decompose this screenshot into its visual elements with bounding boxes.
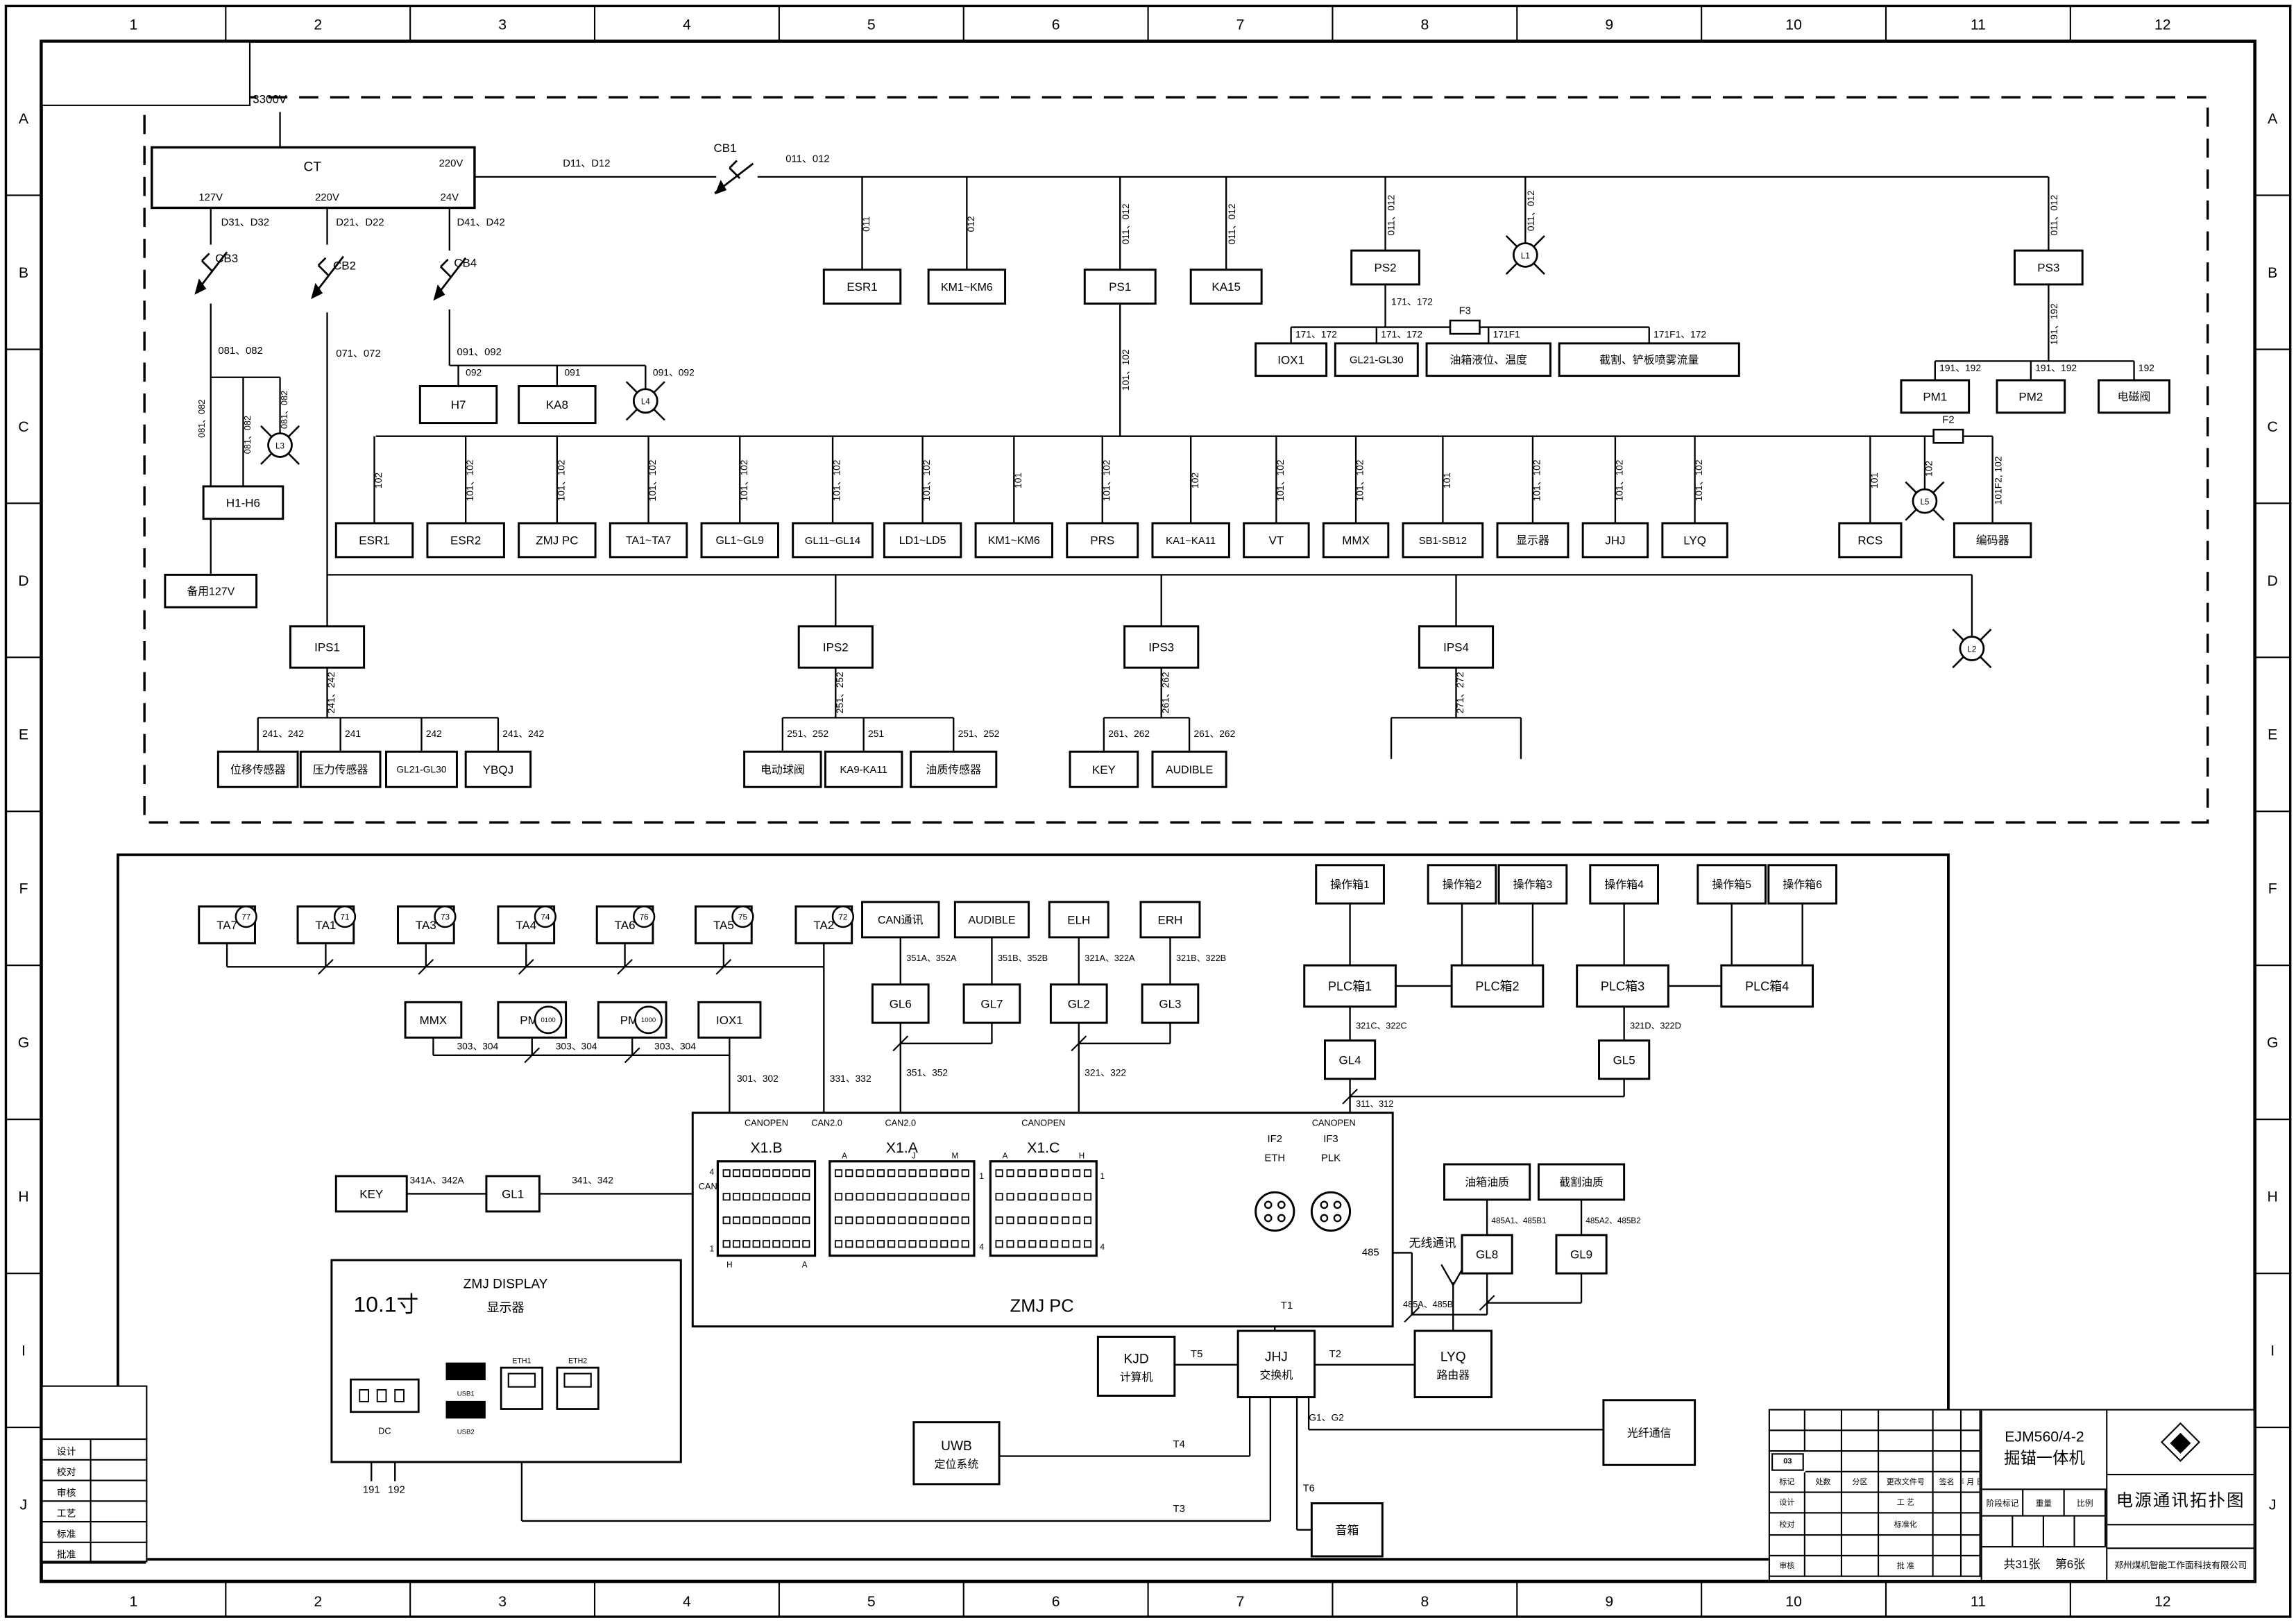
box-label: 操作箱6 bbox=[1783, 878, 1822, 891]
row-label: E bbox=[19, 726, 28, 743]
signature-empty-cell bbox=[43, 1387, 146, 1440]
connector-pin bbox=[899, 1217, 905, 1223]
signature-row: 标准 bbox=[43, 1522, 146, 1543]
box-label: H7 bbox=[451, 398, 466, 411]
column-label: 5 bbox=[867, 1593, 876, 1610]
column-label: 11 bbox=[1971, 16, 1986, 33]
connector-pin bbox=[793, 1241, 799, 1247]
wire-label: ETH2 bbox=[568, 1357, 587, 1366]
connector-pin bbox=[846, 1241, 852, 1247]
badge-value: 73 bbox=[441, 912, 450, 921]
connector-pin bbox=[962, 1193, 969, 1200]
column-label: 10 bbox=[1785, 1593, 1802, 1610]
wire-label: ETH bbox=[1264, 1153, 1285, 1164]
box-label: 光纤通信 bbox=[1627, 1427, 1672, 1439]
box-label: 电磁阀 bbox=[2118, 391, 2151, 403]
connector-pin bbox=[1040, 1193, 1046, 1200]
row-label: D bbox=[18, 572, 28, 589]
wire-label: 261、262 bbox=[1160, 672, 1171, 713]
connector-pin bbox=[867, 1170, 874, 1176]
box-sublabel: 计算机 bbox=[1120, 1370, 1153, 1384]
sheet-count: 共31张 bbox=[2004, 1556, 2041, 1572]
title-block-cell bbox=[1962, 1514, 1981, 1535]
wire-label: 012 bbox=[966, 216, 976, 232]
box-label: GL6 bbox=[890, 998, 912, 1011]
wire-label: 191 bbox=[363, 1485, 380, 1496]
wire-label: 251、252 bbox=[835, 672, 845, 713]
wire-label: 303、304 bbox=[654, 1041, 696, 1051]
wire-label: 321C、322C bbox=[1356, 1021, 1407, 1031]
drawing-title: 电源通讯拓扑图 bbox=[2108, 1474, 2254, 1524]
row-label: H bbox=[18, 1189, 28, 1205]
title-block-cell bbox=[1805, 1535, 1842, 1556]
row-label: I bbox=[22, 1343, 26, 1359]
box-label: IOX1 bbox=[716, 1014, 743, 1027]
title-block-cell bbox=[1879, 1431, 1934, 1452]
box-label: TA4 bbox=[516, 919, 536, 932]
box-label: PS1 bbox=[1109, 280, 1131, 294]
usb-connector bbox=[447, 1402, 485, 1418]
row-label: J bbox=[2269, 1497, 2277, 1513]
connector-pin bbox=[835, 1217, 842, 1223]
wire-label: 220V bbox=[439, 158, 464, 169]
wire-label: 091 bbox=[564, 368, 580, 378]
title-block-cell bbox=[1842, 1411, 1879, 1431]
title-block-cell bbox=[1842, 1431, 1879, 1452]
column-label: 1 bbox=[129, 1593, 137, 1610]
connector-pin bbox=[1007, 1193, 1013, 1200]
connector-pin bbox=[888, 1217, 894, 1223]
connector-pin bbox=[941, 1241, 947, 1247]
connector-pin bbox=[793, 1193, 799, 1200]
column-label: 8 bbox=[1420, 1593, 1429, 1610]
empty-cell bbox=[2108, 1524, 2254, 1547]
box-label: IPS4 bbox=[1443, 641, 1469, 654]
connector-pin bbox=[962, 1170, 969, 1176]
wire-label: 341A、342A bbox=[409, 1175, 464, 1186]
connector-pin bbox=[941, 1193, 947, 1200]
connector-pin bbox=[803, 1193, 809, 1200]
wire-label: 261、262 bbox=[1193, 729, 1235, 739]
wire-label: 171、172 bbox=[1381, 329, 1422, 339]
connector-pin bbox=[763, 1170, 769, 1176]
wire-label: 191、192 bbox=[2035, 363, 2077, 373]
connector-pin bbox=[803, 1217, 809, 1223]
connector-pin bbox=[951, 1217, 958, 1223]
row-label: A bbox=[19, 110, 29, 127]
connector-pin bbox=[743, 1193, 749, 1200]
connector-pin bbox=[920, 1170, 926, 1176]
box-label: PM1 bbox=[1923, 390, 1947, 403]
wire-label: 171F1 bbox=[1493, 329, 1520, 339]
signature-row: 审核 bbox=[43, 1481, 146, 1502]
lamp-label: L4 bbox=[641, 398, 650, 407]
wire-label: ZMJ PC bbox=[1010, 1296, 1074, 1316]
title-block-cell bbox=[1770, 1411, 1805, 1431]
box-label: RCS bbox=[1857, 534, 1882, 547]
wire-label: H bbox=[1079, 1151, 1085, 1160]
box-label: 电动球阀 bbox=[760, 763, 805, 776]
box-label: TA1 bbox=[315, 919, 336, 932]
wire-label: 102 bbox=[1190, 473, 1200, 488]
row-label: H bbox=[2268, 1189, 2278, 1205]
connector-pin bbox=[951, 1193, 958, 1200]
box-label: SB1-SB12 bbox=[1419, 536, 1467, 547]
box-label: 音箱 bbox=[1335, 1524, 1359, 1537]
column-label: 3 bbox=[498, 1593, 507, 1610]
connector-pin bbox=[930, 1193, 937, 1200]
box-label: KA9-KA11 bbox=[840, 765, 887, 776]
connector-pin bbox=[888, 1241, 894, 1247]
company-logo-icon bbox=[2161, 1422, 2200, 1462]
connector-pin bbox=[930, 1241, 937, 1247]
box-sublabel: 定位系统 bbox=[935, 1459, 979, 1471]
title-block-cell-处数: 处数 bbox=[1805, 1472, 1842, 1493]
box-label: GL4 bbox=[1339, 1053, 1361, 1067]
column-label: 8 bbox=[1420, 16, 1429, 33]
connector-pin bbox=[733, 1193, 740, 1200]
wire-label: 101 bbox=[1442, 473, 1452, 488]
wire-label: A bbox=[802, 1261, 808, 1270]
connector-pin bbox=[941, 1217, 947, 1223]
box-label: KM1~KM6 bbox=[941, 282, 993, 294]
wire-label: 071、072 bbox=[336, 348, 380, 359]
title-block-cell-设计: 设计 bbox=[1770, 1493, 1805, 1514]
wire-label: 4 bbox=[979, 1243, 984, 1252]
box-label: 油箱液位、温度 bbox=[1450, 354, 1528, 366]
wire-label: H bbox=[726, 1261, 732, 1270]
wire-label: 485A、485B bbox=[1403, 1299, 1453, 1309]
title-block-cell-校对: 校对 bbox=[1770, 1514, 1805, 1535]
title-block-cell-03: 03 bbox=[1771, 1454, 1804, 1472]
connector-pin bbox=[930, 1170, 937, 1176]
wire-label: D21、D22 bbox=[336, 217, 384, 228]
badge-value: 71 bbox=[341, 912, 350, 921]
title-block-cell bbox=[1842, 1452, 1879, 1473]
connector-pin bbox=[920, 1241, 926, 1247]
connector-pin bbox=[1029, 1217, 1035, 1223]
wire-label: 101 bbox=[1013, 473, 1023, 488]
column-label: 5 bbox=[867, 16, 876, 33]
wire-label: 102 bbox=[373, 473, 384, 488]
title-block-cell bbox=[1934, 1431, 1962, 1452]
row-label: E bbox=[2268, 726, 2277, 743]
connector-pin bbox=[1051, 1217, 1057, 1223]
column-label: 1 bbox=[129, 16, 137, 33]
box-label: KA1~KA11 bbox=[1166, 536, 1216, 547]
connector-pin bbox=[783, 1217, 789, 1223]
connector-pin bbox=[996, 1170, 1002, 1176]
connector-pin bbox=[753, 1217, 759, 1223]
wire-label: 1 bbox=[710, 1244, 714, 1253]
connector-pin bbox=[909, 1193, 915, 1200]
connector-pin bbox=[803, 1241, 809, 1247]
wire-label: CAN2.0 bbox=[811, 1118, 842, 1128]
badge-value: 75 bbox=[738, 912, 747, 921]
box-label: AUDIBLE bbox=[1166, 764, 1213, 776]
wire-label: 341、342 bbox=[572, 1175, 613, 1186]
connector-pin bbox=[1040, 1170, 1046, 1176]
connector-pin bbox=[878, 1170, 884, 1176]
signature-row: 工艺 bbox=[43, 1502, 146, 1522]
stage-empty-cells bbox=[1982, 1515, 2106, 1546]
connector-pin bbox=[763, 1241, 769, 1247]
wire-label: 191、192 bbox=[1939, 363, 1981, 373]
box-label: ELH bbox=[1067, 913, 1090, 926]
wire-label: 101、102 bbox=[1694, 460, 1704, 502]
connector-pin bbox=[899, 1170, 905, 1176]
wire-label: 321B、322B bbox=[1176, 953, 1226, 963]
connector-pin bbox=[1062, 1170, 1069, 1176]
title-block-cell bbox=[1805, 1556, 1842, 1577]
connector-pin bbox=[878, 1193, 884, 1200]
wire-label: 081、082 bbox=[242, 416, 253, 454]
connector-pin bbox=[1073, 1217, 1080, 1223]
box-label: PS3 bbox=[2037, 262, 2059, 275]
wire-label: CAN2.0 bbox=[885, 1118, 916, 1128]
wire-label: F2 bbox=[1942, 415, 1954, 426]
connector-pin bbox=[1073, 1170, 1080, 1176]
box-label: PLC箱3 bbox=[1601, 979, 1644, 993]
signature-row: 批准 bbox=[43, 1543, 146, 1564]
column-label: 12 bbox=[2154, 1593, 2171, 1610]
connector-pin bbox=[793, 1217, 799, 1223]
box-label: LYQ bbox=[1683, 534, 1706, 547]
title-block-revision-grid: 03标记处数分区更改文件号签名年 月 日设计工 艺校对标准化审核批 准 bbox=[1770, 1411, 1982, 1580]
column-label: 4 bbox=[683, 16, 691, 33]
title-block-cell bbox=[1842, 1535, 1879, 1556]
title-block-cell bbox=[1805, 1493, 1842, 1514]
connector-pin bbox=[899, 1241, 905, 1247]
box-label: PS2 bbox=[1375, 262, 1397, 275]
box-label: PLC箱2 bbox=[1475, 979, 1519, 993]
title-block-cell bbox=[1879, 1452, 1934, 1473]
box-label: KJD bbox=[1124, 1352, 1149, 1367]
title-block-cell-签名: 签名 bbox=[1934, 1472, 1962, 1493]
lamp-label: L2 bbox=[1967, 645, 1976, 654]
dc-pin bbox=[395, 1390, 404, 1402]
wire-label: 10.1寸 bbox=[354, 1291, 419, 1316]
title-block-cell-分区: 分区 bbox=[1842, 1472, 1879, 1493]
row-label: F bbox=[19, 881, 28, 897]
title-block-cell bbox=[1934, 1493, 1962, 1514]
connector-pin bbox=[723, 1217, 729, 1223]
wire-label: 091、092 bbox=[457, 347, 501, 358]
connector-pin bbox=[1085, 1170, 1091, 1176]
wire-label: 081、082 bbox=[218, 346, 262, 357]
wire-label: 101、102 bbox=[1532, 460, 1542, 502]
connector-pin bbox=[867, 1241, 874, 1247]
signature-role-label: 校对 bbox=[43, 1461, 92, 1480]
box-label: PM2 bbox=[2018, 390, 2043, 403]
wire-label: 101、102 bbox=[1275, 460, 1286, 502]
wire-label: 081、082 bbox=[279, 391, 289, 429]
connector-pin bbox=[1062, 1193, 1069, 1200]
wire-label: 101、102 bbox=[832, 460, 842, 502]
column-label: 12 bbox=[2154, 16, 2171, 33]
eth-slot bbox=[509, 1374, 535, 1387]
connector-pin bbox=[733, 1241, 740, 1247]
connector-pin bbox=[1085, 1193, 1091, 1200]
wire-label: 101、102 bbox=[647, 460, 658, 502]
wire-label: IF2 bbox=[1268, 1134, 1282, 1145]
connector-pin bbox=[1062, 1217, 1069, 1223]
wire-label: A bbox=[842, 1151, 847, 1160]
scale-label: 比例 bbox=[2065, 1490, 2106, 1515]
wire-label: 101、102 bbox=[1355, 460, 1366, 502]
wire-label: 241、242 bbox=[326, 672, 337, 713]
title-block-cell bbox=[1962, 1493, 1981, 1514]
title-block-cell bbox=[1842, 1493, 1879, 1514]
row-label: F bbox=[2268, 881, 2277, 897]
title-block-cell-标记: 标记 bbox=[1770, 1472, 1805, 1493]
wire-label: ETH1 bbox=[512, 1357, 531, 1366]
wire-label: X1.C bbox=[1027, 1139, 1060, 1156]
wire-label: 011、012 bbox=[1121, 203, 1131, 244]
stage-label: 阶段标记 bbox=[1982, 1490, 2023, 1515]
wire-label: D11、D12 bbox=[563, 158, 610, 169]
column-label: 6 bbox=[1052, 1593, 1060, 1610]
signature-table: 设计校对审核工艺标准批准 bbox=[41, 1386, 147, 1563]
box-label: YBQJ bbox=[483, 763, 513, 776]
row-label: B bbox=[19, 264, 28, 281]
connector-pin bbox=[1007, 1241, 1013, 1247]
wire-label: CB1 bbox=[713, 142, 736, 155]
wire-label: 321、322 bbox=[1085, 1068, 1126, 1078]
connector-pin bbox=[1085, 1217, 1091, 1223]
box-label: PRS bbox=[1090, 534, 1114, 547]
wire-label: 081、082 bbox=[196, 400, 207, 438]
connector-pin bbox=[1029, 1241, 1035, 1247]
connector-pin bbox=[835, 1241, 842, 1247]
wire-label: DC bbox=[378, 1426, 391, 1436]
wire-label: T3 bbox=[1173, 1504, 1185, 1515]
row-label: G bbox=[2267, 1035, 2279, 1051]
title-block-cell bbox=[1962, 1411, 1981, 1431]
connector-pin bbox=[962, 1217, 969, 1223]
box-label: GL11~GL14 bbox=[805, 536, 860, 547]
box-label: GL8 bbox=[1476, 1248, 1498, 1261]
wire-label: 101、102 bbox=[921, 460, 932, 502]
connector-pin bbox=[763, 1217, 769, 1223]
box-label: TA2 bbox=[813, 919, 834, 932]
title-block-cell bbox=[1962, 1452, 1981, 1473]
wire-label: T1 bbox=[1281, 1300, 1293, 1311]
box-label: VT bbox=[1269, 534, 1284, 547]
title-block-cell bbox=[1770, 1431, 1805, 1452]
wire-label: 251、252 bbox=[787, 729, 828, 739]
wire-label: 251 bbox=[868, 729, 884, 739]
wire-label: 331、332 bbox=[830, 1073, 871, 1084]
connector-pin bbox=[856, 1217, 862, 1223]
port-IF3-PLK bbox=[1311, 1192, 1350, 1230]
wire-label: 192 bbox=[2138, 363, 2154, 373]
connector-pin bbox=[743, 1217, 749, 1223]
wire-label: 485 bbox=[1362, 1248, 1379, 1259]
wire-label: 127V bbox=[198, 192, 223, 203]
box-label: GL5 bbox=[1613, 1053, 1635, 1067]
wire-label: USB2 bbox=[457, 1429, 475, 1436]
column-label: 9 bbox=[1605, 16, 1613, 33]
box-label: 显示器 bbox=[1516, 534, 1549, 547]
connector-pin bbox=[920, 1193, 926, 1200]
connector-pin bbox=[951, 1170, 958, 1176]
column-label: 2 bbox=[314, 1593, 322, 1610]
title-block-right: 电源通讯拓扑图 郑州煤机智能工作面科技有限公司 bbox=[2108, 1411, 2254, 1580]
dc-pin bbox=[359, 1390, 368, 1402]
column-label: 9 bbox=[1605, 1593, 1613, 1610]
badge-value: 72 bbox=[838, 912, 847, 921]
connector-pin bbox=[1018, 1170, 1024, 1176]
connector-pin bbox=[856, 1193, 862, 1200]
signature-role-label: 审核 bbox=[43, 1481, 92, 1501]
connector-pin bbox=[867, 1193, 874, 1200]
box-label: 压力传感器 bbox=[313, 763, 368, 776]
box-label: H1-H6 bbox=[226, 496, 260, 509]
box-label: MMX bbox=[420, 1014, 448, 1027]
wire-label: A bbox=[1003, 1151, 1008, 1160]
box-label: JHJ bbox=[1265, 1350, 1288, 1365]
signature-role-label: 批准 bbox=[43, 1543, 92, 1563]
connector-pin bbox=[1007, 1217, 1013, 1223]
wire-label: 011、012 bbox=[1227, 203, 1237, 244]
box-label: TA1~TA7 bbox=[626, 535, 671, 547]
connector-pin bbox=[951, 1241, 958, 1247]
connector-pin bbox=[1029, 1170, 1035, 1176]
wire-label: 1 bbox=[1100, 1172, 1105, 1181]
box-label: GL7 bbox=[980, 998, 1003, 1011]
wire-label: 101 bbox=[1869, 473, 1880, 488]
connector-pin bbox=[1018, 1193, 1024, 1200]
connector-pin bbox=[878, 1217, 884, 1223]
wire-label: 351B、352B bbox=[998, 953, 1048, 963]
lamp-label: L1 bbox=[1521, 251, 1530, 260]
wire-label: CB3 bbox=[215, 252, 238, 265]
lamp-label: L5 bbox=[1920, 498, 1929, 507]
wire-label: 011、012 bbox=[1386, 195, 1396, 236]
box-label: 位移传感器 bbox=[230, 763, 286, 776]
column-label: 4 bbox=[683, 1593, 691, 1610]
box-label: IPS3 bbox=[1148, 641, 1174, 654]
title-block-cell bbox=[1934, 1514, 1962, 1535]
connector-pin bbox=[996, 1241, 1002, 1247]
connector-pin bbox=[920, 1217, 926, 1223]
title-block-cell-批 准: 批 准 bbox=[1879, 1556, 1934, 1577]
eth-slot bbox=[564, 1374, 590, 1387]
wire-label: 220V bbox=[315, 192, 339, 203]
wire-label: T2 bbox=[1329, 1349, 1341, 1360]
wire-label: 303、304 bbox=[556, 1041, 597, 1051]
wire-label: M bbox=[951, 1151, 958, 1160]
connector-pin bbox=[846, 1170, 852, 1176]
wire-label: PLK bbox=[1321, 1153, 1341, 1164]
title-block-cell bbox=[1805, 1431, 1842, 1452]
box-label: IPS2 bbox=[823, 641, 849, 654]
title-block-cell bbox=[1842, 1514, 1879, 1535]
box-label: KM1~KM6 bbox=[988, 535, 1040, 547]
box-label: GL9 bbox=[1570, 1248, 1592, 1261]
box-sublabel: 交换机 bbox=[1260, 1369, 1293, 1382]
wire-label: ZMJ DISPLAY bbox=[464, 1277, 548, 1291]
wire-label: 011、012 bbox=[2049, 195, 2059, 236]
wire-label: G1、G2 bbox=[1309, 1413, 1344, 1423]
wire-label: 171、172 bbox=[1391, 297, 1433, 307]
connector-pin bbox=[773, 1241, 779, 1247]
title-block-cell-更改文件号: 更改文件号 bbox=[1879, 1472, 1934, 1493]
signature-row: 设计 bbox=[43, 1440, 146, 1461]
wire-label: 191、192 bbox=[2049, 303, 2059, 345]
wire-label: 301、302 bbox=[737, 1073, 779, 1084]
